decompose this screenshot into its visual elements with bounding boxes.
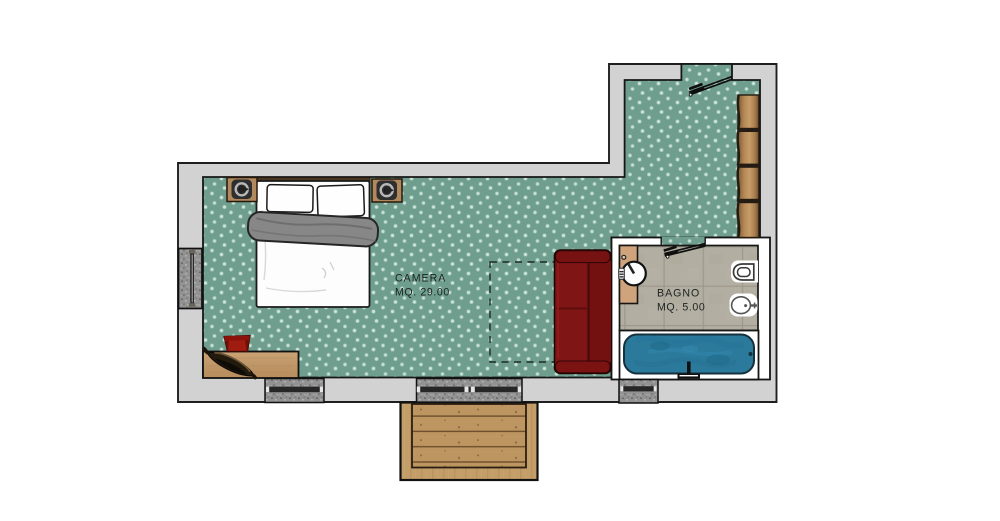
svg-text:CAMERA: CAMERA [395, 273, 446, 285]
svg-text:MQ. 29.00: MQ. 29.00 [395, 287, 450, 299]
svg-text:MQ. 5.00: MQ. 5.00 [657, 302, 705, 314]
svg-text:BAGNO: BAGNO [657, 288, 700, 300]
